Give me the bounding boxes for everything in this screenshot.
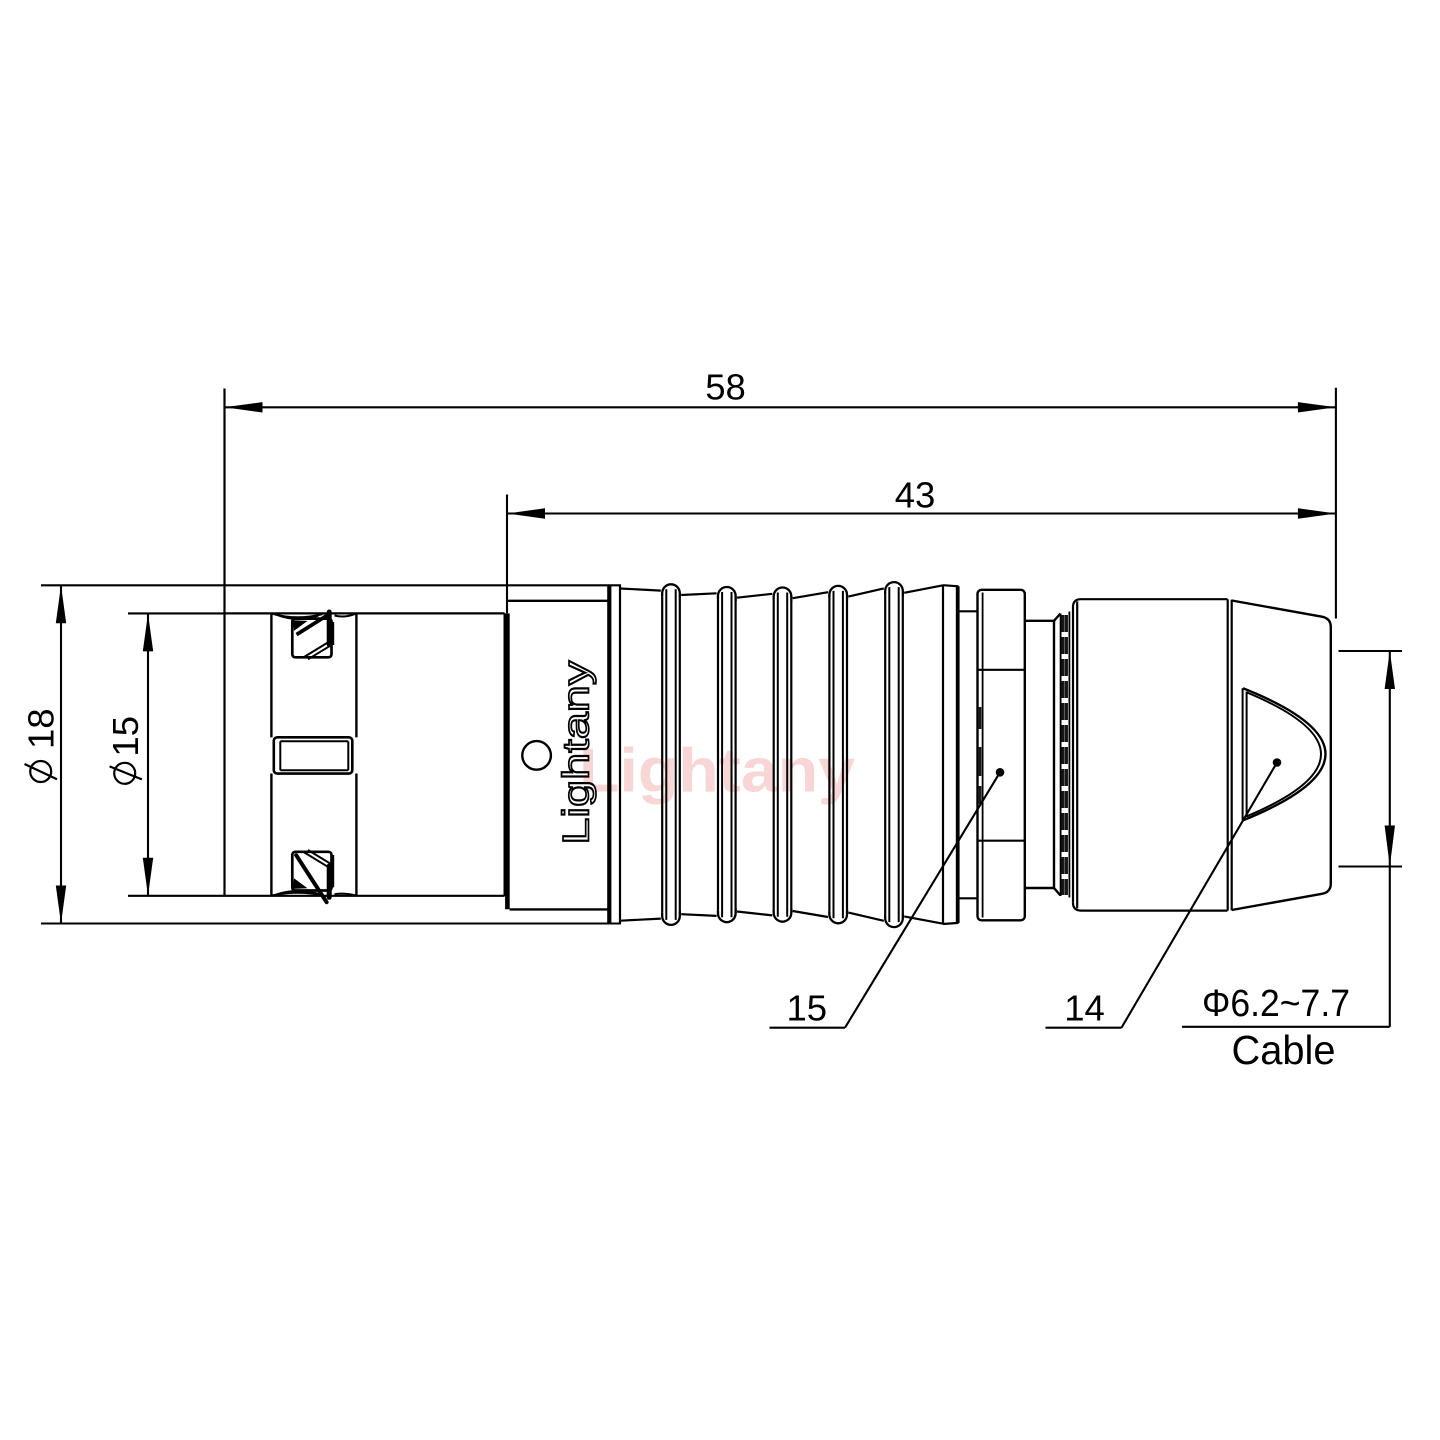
svg-text:15: 15 <box>105 716 146 757</box>
svg-text:Lightany: Lightany <box>555 660 597 844</box>
svg-text:14: 14 <box>1064 988 1105 1029</box>
svg-text:15: 15 <box>786 988 827 1029</box>
svg-text:Φ6.2~7.7: Φ6.2~7.7 <box>1202 983 1350 1025</box>
svg-text:43: 43 <box>895 475 936 516</box>
svg-text:Cable: Cable <box>1232 1027 1336 1073</box>
svg-text:58: 58 <box>705 367 746 408</box>
svg-text:18: 18 <box>21 708 62 749</box>
